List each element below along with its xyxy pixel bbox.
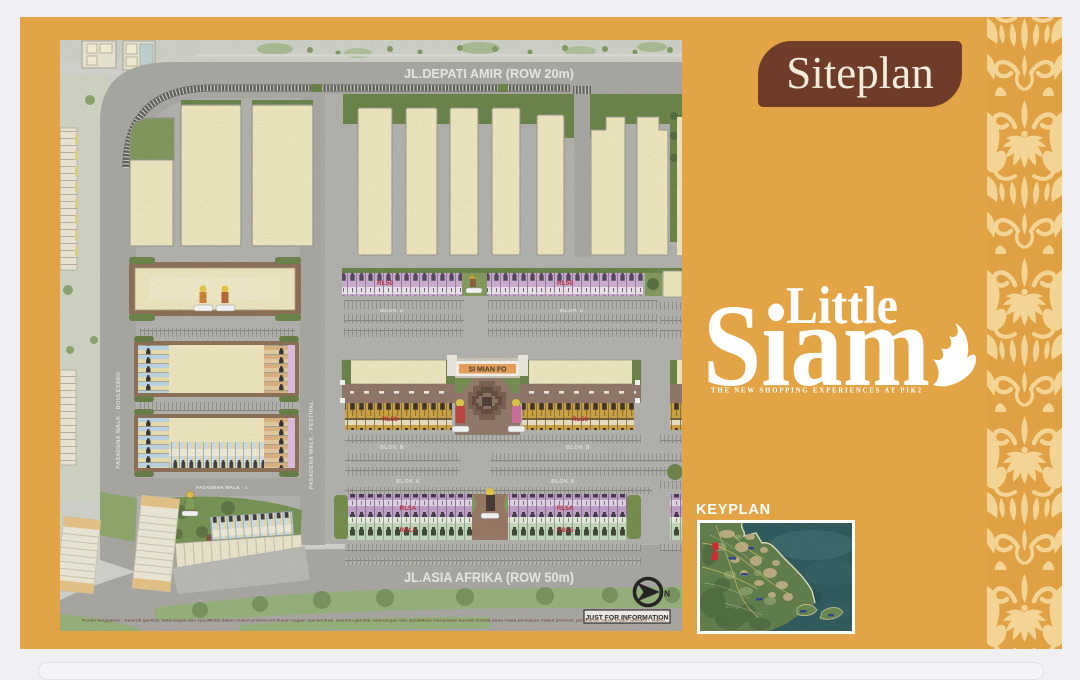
svg-text:THE NEW SHOPPING EXPERIENCES A: THE NEW SHOPPING EXPERIENCES AT PIK2 [711,387,923,395]
svg-text:Siam: Siam [703,280,930,402]
